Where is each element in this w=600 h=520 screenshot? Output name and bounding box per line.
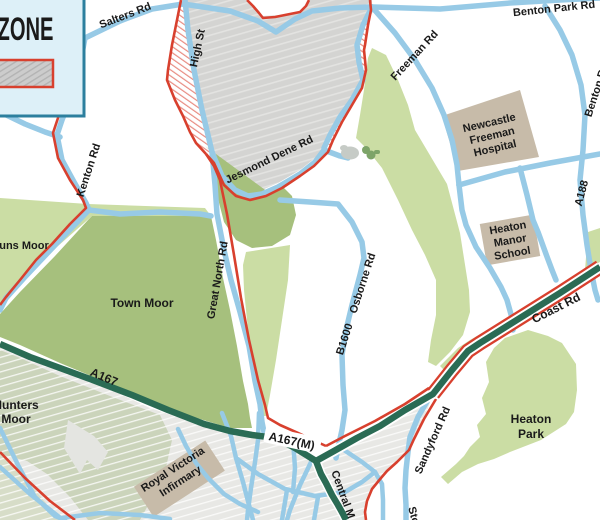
svg-text:ZONE: ZONE [0, 11, 54, 47]
svg-text:Park: Park [518, 427, 544, 441]
svg-text:Heaton: Heaton [511, 412, 552, 426]
svg-text:Moor: Moor [1, 412, 31, 426]
svg-text:Hunters: Hunters [0, 398, 39, 412]
svg-text:Town Moor: Town Moor [110, 296, 173, 310]
svg-text:Nuns Moor: Nuns Moor [0, 240, 49, 252]
